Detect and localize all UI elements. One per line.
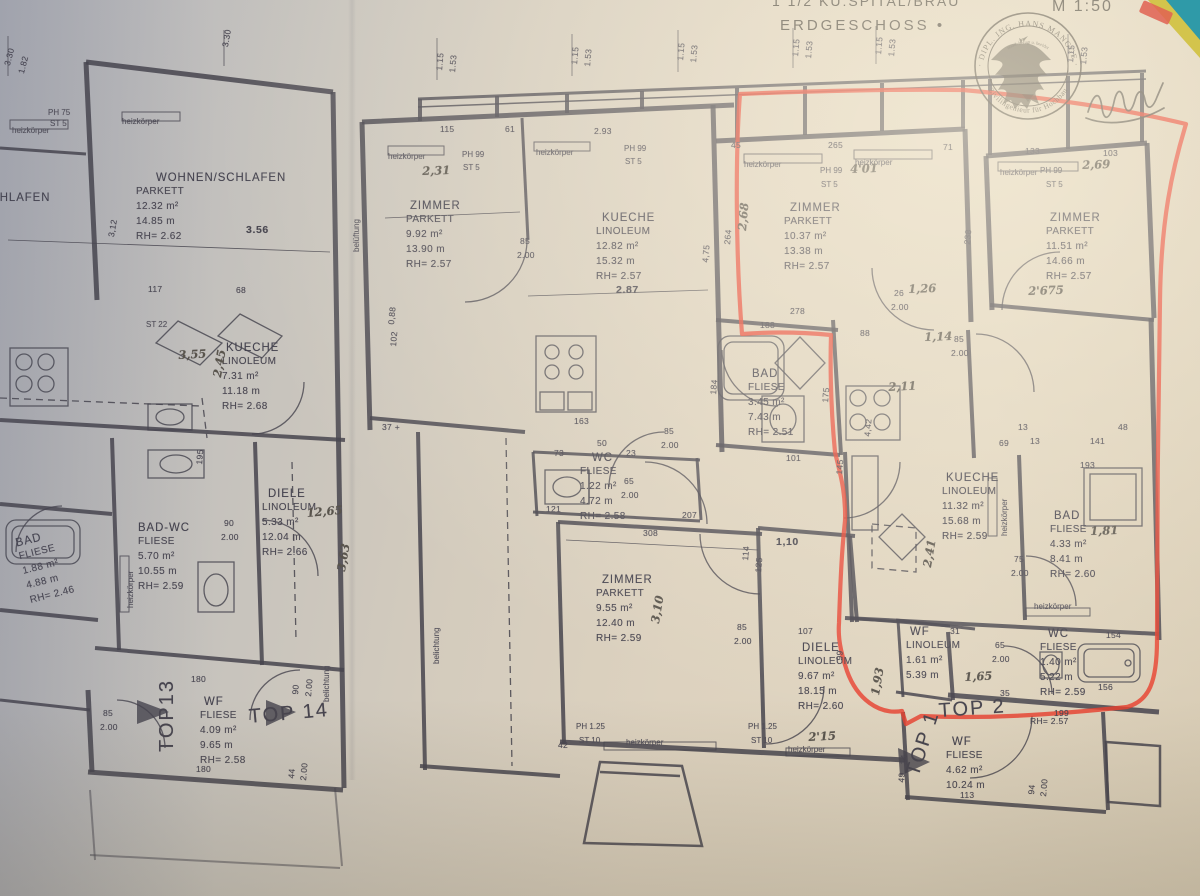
teal-object — [1166, 0, 1200, 40]
dimension-label: 101 — [786, 453, 801, 463]
room-label-diele: DIELELINOLEUM5.33 m²12.04 mRH= 2.66 — [262, 486, 316, 560]
dimension-label: 1.15 — [569, 46, 581, 65]
dimension-label: 42 — [558, 740, 568, 750]
handwritten-note: 2,41 — [920, 538, 939, 568]
dimension-label: 1.15 — [1065, 44, 1077, 63]
handwritten-note: 1,81 — [1090, 523, 1118, 538]
dimension-label: 4,42 — [862, 418, 874, 437]
dimension-label: 85 — [954, 334, 964, 344]
dimension-label: 207 — [682, 510, 697, 520]
dimension-label: 2.00 — [891, 302, 909, 312]
room-label-zimmer: ZIMMERPARKETT10.37 m²13.38 mRH= 2.57 — [784, 200, 843, 274]
handwritten-note: 1,26 — [908, 281, 936, 296]
handwritten-note: 12,65 — [306, 503, 343, 520]
dimension-label: 71 — [943, 142, 953, 152]
dimension-label: 175 — [820, 387, 831, 403]
apartment-number-top2: TOP 2 — [938, 695, 1007, 723]
dimension-label: belichtung — [432, 628, 441, 664]
dimension-label: PH 99 — [624, 144, 646, 153]
dimension-label: 44 — [286, 768, 297, 779]
dimension-label: 2.00 — [621, 490, 639, 500]
dimension-label: 278 — [790, 306, 805, 316]
dimension-label: 2.00 — [1038, 778, 1050, 797]
dimension-label: 90 — [224, 518, 234, 528]
dimension-label: 13 — [1030, 436, 1040, 446]
dimension-label: 180 — [196, 764, 211, 774]
dimension-label: 1.15 — [790, 38, 802, 57]
handwritten-note: 1,14 — [924, 329, 952, 344]
room-label-wf: WFFLIESE4.62 m²10.24 m — [946, 734, 985, 793]
dimension-label: 31 — [950, 626, 960, 636]
dimension-label: 145 — [834, 459, 845, 475]
handwritten-note: 3,55 — [178, 347, 207, 362]
dimension-label: 1.53 — [688, 44, 700, 63]
handwritten-note: 4'01 — [850, 161, 878, 176]
dimension-label: 2.00 — [661, 440, 679, 450]
dimension-label: 3.30 — [220, 29, 233, 48]
dimension-label: 113 — [960, 790, 974, 800]
dimension-label: heizkörper — [536, 148, 573, 157]
dimension-label: 154 — [1106, 630, 1121, 640]
dimension-label: 2.00 — [303, 678, 315, 697]
dimension-label: 0,88 — [386, 306, 398, 325]
dimension-label: 45 — [731, 140, 741, 150]
dimension-label: ST 22 — [146, 320, 167, 329]
dimension-label: 13 — [1018, 422, 1028, 432]
room-label-schlafen: SCHLAFEN — [0, 190, 54, 204]
room-label-kueche: KUECHELINOLEUM11.32 m²15.68 mRH= 2.59 — [942, 470, 1002, 544]
room-label-bad: BADFLIESE1.88 m²4.88 mRH= 2.46 — [14, 525, 76, 608]
room-label-wohnen-schlafen: WOHNEN/SCHLAFENPARKETT12.32 m²14.85 mRH=… — [136, 170, 293, 244]
dimension-label: 115 — [440, 124, 454, 134]
dimension-label: 48 — [1118, 422, 1128, 432]
dimension-label: 1.53 — [886, 38, 898, 57]
dimension-label: 2.93 — [594, 126, 612, 136]
dimension-label: 163 — [574, 416, 589, 426]
dimension-label: 3.30 — [2, 47, 16, 67]
dimension-label: 73 — [554, 448, 564, 458]
dimension-label: 4,75 — [700, 244, 712, 263]
dimension-label: 2.00 — [517, 250, 535, 260]
dimension-label: 2.00 — [951, 348, 969, 358]
dimension-label: 1.53 — [582, 48, 594, 67]
dimension-label: 2.00 — [298, 762, 310, 781]
dimension-label: 65 — [995, 640, 1005, 650]
dimension-label: heizkörper — [626, 738, 663, 747]
dimension-label: 1.15 — [434, 52, 446, 71]
dimension-label: 2.00 — [100, 722, 118, 732]
dimension-label: 121 — [546, 504, 561, 514]
plan-labels-layer: WOHNEN/SCHLAFENPARKETT12.32 m²14.85 mRH=… — [0, 0, 1200, 896]
dimension-label: PH 99 — [462, 150, 484, 159]
dimension-label: 3,12 — [106, 219, 119, 238]
room-label-zimmer: ZIMMERPARKETT9.92 m²13.90 mRH= 2.57 — [406, 198, 463, 272]
dimension-label: 90 — [290, 684, 301, 695]
room-label-kueche: KUECHELINOLEUM12.82 m²15.32 mRH= 2.57 — [596, 210, 658, 284]
dimension-label: 94 — [1026, 784, 1037, 795]
apartment-number-top13: TOP13 — [156, 679, 179, 752]
dimension-label: heizkörper — [12, 126, 49, 135]
dimension-label: 68 — [236, 285, 246, 295]
dimension-label: 141 — [1090, 436, 1105, 446]
dimension-label: 1.15 — [675, 42, 687, 61]
dimension-label: 195 — [194, 449, 205, 465]
dimension-label: 188 — [760, 320, 775, 330]
dimension-label: 23 — [626, 448, 636, 458]
dimension-label: 2.00 — [1011, 568, 1029, 578]
floorplan-photo: 1 1/2 KU:SPITAL/BRAU ERDGESCHOSS • M 1:5… — [0, 0, 1200, 896]
dimension-label: ST 5 — [1046, 180, 1063, 189]
dimension-label: 133 — [1025, 146, 1040, 156]
dimension-label: heizkörper — [1000, 499, 1009, 536]
dimension-label: ST 10 — [751, 736, 772, 745]
room-label-bad: BADFLIESE4.33 m²8.41 mRH= 2.60 — [1050, 508, 1096, 582]
handwritten-note: 3,63 — [334, 542, 353, 572]
handwritten-note: 1,65 — [964, 669, 993, 684]
dimension-label: 50 — [597, 438, 607, 448]
dimension-label: ST 10 — [579, 736, 600, 745]
dimension-label: 75 — [1014, 554, 1024, 564]
dimension-label: 1,10 — [776, 536, 799, 548]
dimension-label: 99 — [834, 650, 845, 661]
dimension-label: ST 5 — [821, 180, 838, 189]
dimension-label: 2.00 — [221, 532, 239, 542]
dimension-label: heizkörper — [788, 745, 825, 754]
dimension-label: 61 — [505, 124, 515, 134]
apartment-number-top1: TOP 1 — [902, 708, 945, 779]
dimension-label: 1.15 — [873, 36, 885, 55]
dimension-label: 117 — [148, 284, 162, 294]
dimension-label: 88 — [860, 328, 870, 338]
dimension-label: 85 — [103, 708, 113, 718]
dimension-label: 69 — [999, 438, 1009, 448]
handwritten-note: 1,93 — [868, 666, 887, 696]
dimension-label: 2.00 — [734, 636, 752, 646]
handwritten-note: 2,68 — [735, 202, 751, 231]
room-label-wc: WCFLIESE1.40 m²5.22 mRH= 2.59 — [1040, 626, 1086, 700]
dimension-label: ST 5 — [50, 119, 67, 128]
apartment-number-top14: TOP 14 — [248, 699, 330, 729]
dimension-label: 1.53 — [803, 40, 815, 59]
dimension-label: 264 — [722, 229, 733, 245]
handwritten-note: 2'675 — [1028, 283, 1064, 298]
dimension-label: heizkörper — [388, 152, 425, 161]
dimension-label: belichtung — [322, 666, 331, 702]
room-label-zimmer: ZIMMERPARKETT9.55 m²12.40 mRH= 2.59 — [596, 572, 655, 646]
room-label-bad: BADFLIESE3.45 m²7.43 mRH= 2.51 — [748, 366, 794, 440]
dimension-label: 65 — [624, 476, 634, 486]
dimension-label: 2.87 — [616, 284, 639, 296]
dimension-label: 114 — [740, 546, 751, 561]
handwritten-note: 2,11 — [888, 379, 917, 394]
room-label-wf: WFFLIESE4.09 m²9.65 mRH= 2.58 — [200, 694, 246, 768]
dimension-label: 2.00 — [992, 654, 1010, 664]
dimension-label: PH 99 — [1040, 166, 1062, 175]
dimension-label: 265 — [828, 140, 843, 150]
dimension-label: 85 — [664, 426, 674, 436]
dimension-label: 125 — [753, 557, 764, 573]
dimension-label: 3.56 — [246, 224, 269, 236]
dimension-label: 238 — [962, 229, 973, 245]
room-label-zimmer: ZIMMERPARKETT11.51 m²14.66 mRH= 2.57 — [1046, 210, 1103, 284]
dimension-label: heizkörper — [744, 160, 781, 169]
dimension-label: belüftung — [352, 219, 361, 252]
dimension-label: heizkörper — [122, 117, 159, 126]
dimension-label: 308 — [643, 528, 658, 538]
dimension-label: 37 + — [382, 422, 400, 432]
dimension-label: 193 — [1080, 460, 1095, 470]
dimension-label: ST 5 — [625, 157, 642, 166]
room-label-wc: WCFLIESE1.22 m²4.72 mRH= 2.58 — [580, 450, 626, 524]
dimension-label: heizkörper — [1034, 602, 1071, 611]
dimension-label: 1.82 — [16, 55, 30, 75]
dimension-label: ST 5 — [463, 163, 480, 172]
handwritten-note: 2,69 — [1082, 157, 1110, 172]
dimension-label: 107 — [798, 626, 813, 636]
dimension-label: 85 — [737, 622, 747, 632]
dimension-label: heizkörper — [126, 571, 135, 608]
handwritten-note: 2'15 — [808, 729, 836, 744]
dimension-label: 1.53 — [447, 54, 459, 73]
dimension-label: PH 99 — [820, 166, 842, 175]
dimension-label: PH 75 — [48, 108, 70, 117]
dimension-label: 156 — [1098, 682, 1113, 692]
dimension-label: 1.53 — [1078, 46, 1090, 65]
room-label-kueche: KUECHELINOLEUM7.31 m²11.18 mRH= 2.68 — [222, 340, 282, 414]
dimension-label: PH 1.25 — [576, 722, 605, 731]
dimension-label: 26 — [894, 288, 904, 298]
dimension-label: RH= 2.57 — [1030, 716, 1069, 726]
dimension-label: 184 — [708, 379, 719, 395]
dimension-label: 102 — [388, 331, 399, 347]
dimension-label: 85 — [520, 236, 530, 246]
dimension-label: PH 1.25 — [748, 722, 777, 731]
dimension-label: heizkörper — [1000, 168, 1037, 177]
room-label-bad-wc: BAD-WCFLIESE5.70 m²10.55 mRH= 2.59 — [138, 520, 193, 594]
handwritten-note: 2,31 — [422, 163, 450, 178]
dimension-label: 180 — [191, 674, 206, 684]
dimension-label: 49 — [896, 772, 907, 783]
